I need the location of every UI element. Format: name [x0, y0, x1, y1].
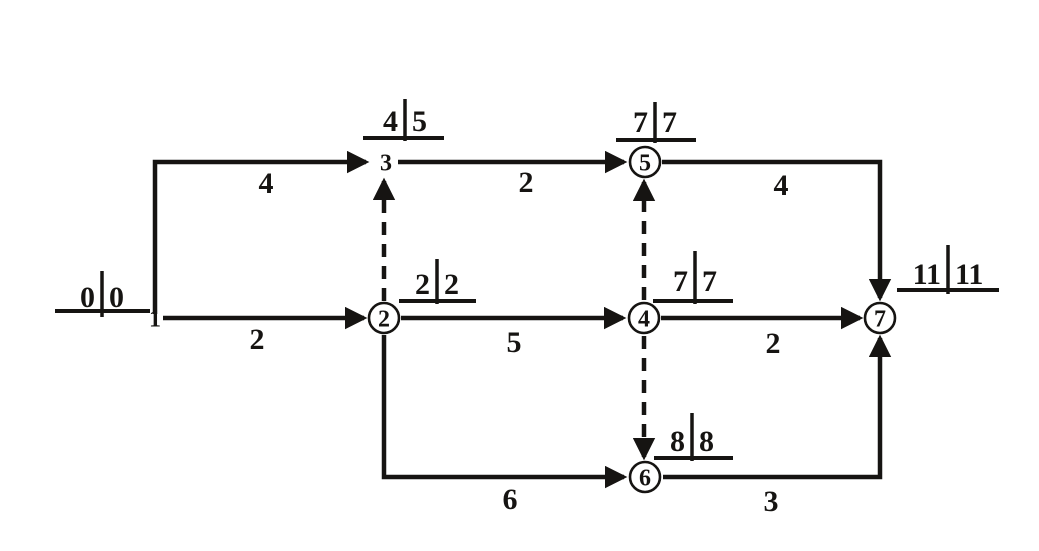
edge-3-5-duration: 2 — [519, 166, 534, 199]
node-7: 71111 — [865, 245, 999, 333]
edge-2-6-arrow — [384, 335, 624, 477]
node-1-number: 1 — [149, 307, 161, 333]
edge-1-2: 2 — [163, 318, 364, 356]
edge-2-6-duration: 6 — [503, 483, 518, 516]
node-3-late-time: 5 — [412, 105, 427, 138]
node-4-late-time: 7 — [702, 265, 717, 298]
edge-6-7-duration: 3 — [764, 485, 779, 518]
node-3-number: 3 — [380, 151, 392, 177]
node-5-early-time: 7 — [633, 106, 648, 139]
edge-4-7-duration: 2 — [766, 327, 781, 360]
node-4-number: 4 — [638, 307, 650, 333]
edge-1-3: 4 — [155, 162, 366, 314]
node-6-number: 6 — [639, 466, 651, 492]
network-diagram-figure: 4224526310022234547757768871111 — [0, 0, 1039, 551]
node-1-time-label: 00 — [55, 271, 150, 317]
edge-1-2-duration: 2 — [250, 323, 265, 356]
node-5-time-label: 77 — [616, 102, 696, 143]
edge-1-3-duration: 4 — [259, 167, 274, 200]
node-4-time-label: 77 — [653, 251, 733, 304]
edge-5-7-duration: 4 — [774, 169, 789, 202]
edge-2-6: 6 — [384, 335, 624, 516]
node-2-early-time: 2 — [415, 268, 430, 301]
node-7-late-time: 11 — [955, 258, 983, 291]
node-2-time-label: 22 — [399, 259, 476, 304]
edge-4-7: 2 — [661, 318, 860, 360]
node-6-early-time: 8 — [670, 425, 685, 458]
node-4-early-time: 7 — [673, 265, 688, 298]
node-6-time-label: 88 — [654, 413, 733, 461]
node-7-number: 7 — [874, 307, 886, 333]
node-5-number: 5 — [639, 151, 651, 177]
node-5-late-time: 7 — [662, 106, 677, 139]
node-3-early-time: 4 — [383, 105, 398, 138]
node-6-late-time: 8 — [699, 425, 714, 458]
node-1: 100 — [55, 271, 161, 333]
node-7-early-time: 11 — [913, 258, 941, 291]
node-2-number: 2 — [378, 307, 390, 333]
network-diagram: 4224526310022234547757768871111 — [0, 0, 1039, 551]
edge-2-4-duration: 5 — [507, 326, 522, 359]
node-3-time-label: 45 — [363, 99, 444, 141]
edge-2-4: 5 — [401, 318, 623, 359]
edge-6-7: 3 — [663, 338, 880, 518]
edge-3-5: 2 — [398, 162, 624, 199]
node-7-time-label: 1111 — [897, 245, 999, 294]
node-2-late-time: 2 — [444, 268, 459, 301]
node-3: 345 — [363, 99, 444, 177]
node-5: 577 — [616, 102, 696, 177]
